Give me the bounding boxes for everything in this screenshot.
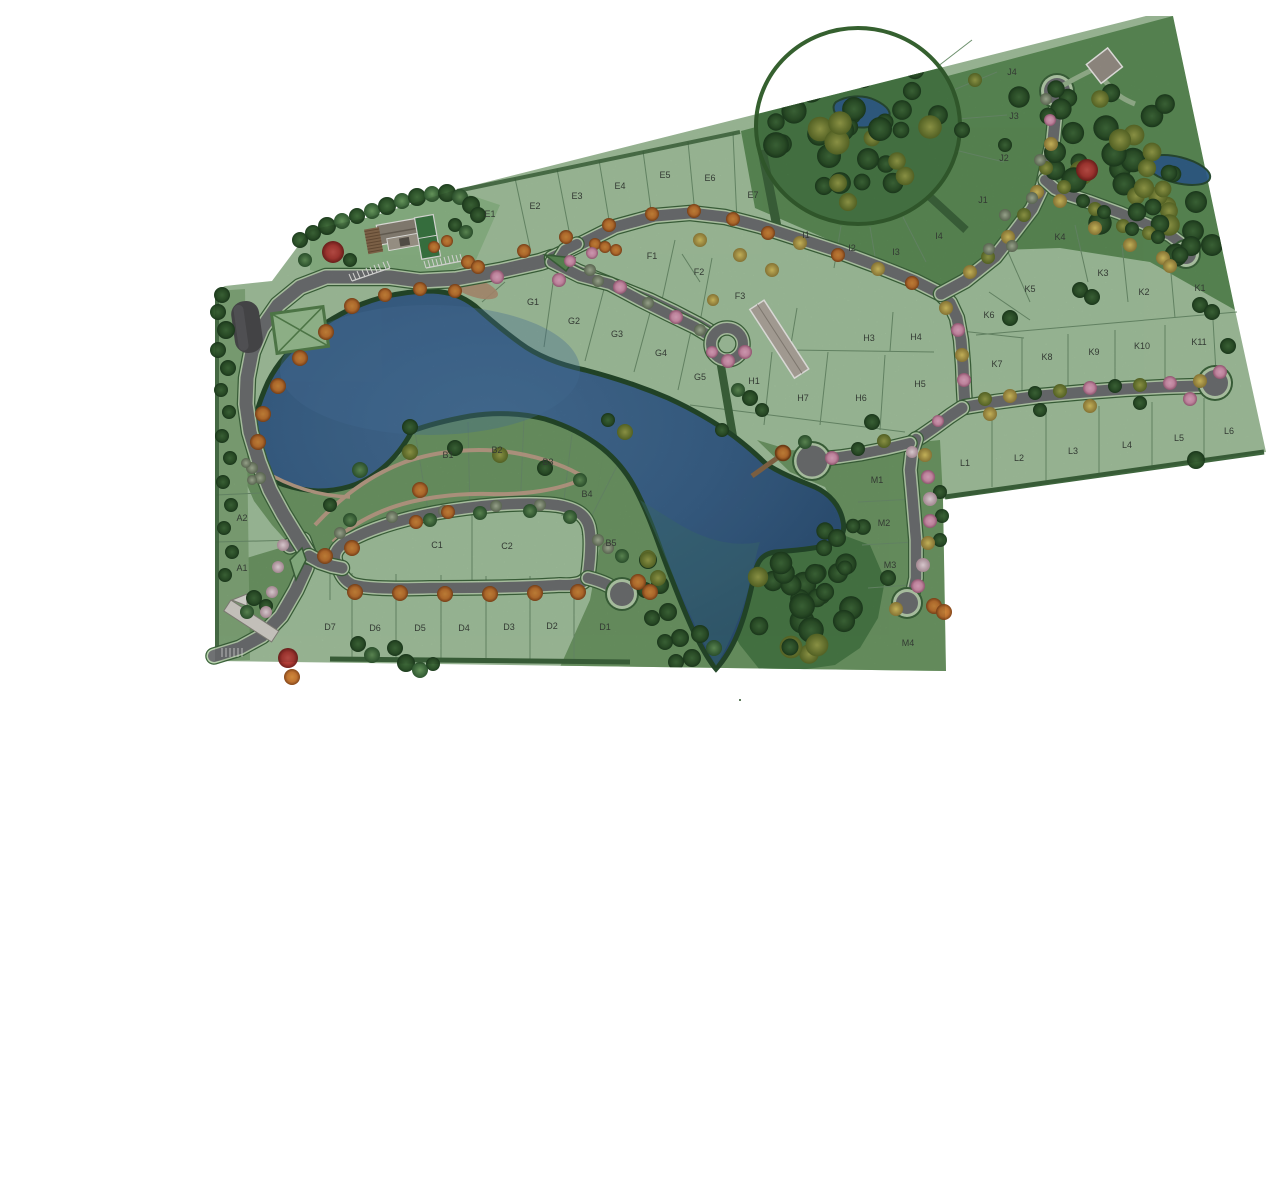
svg-text:J1: J1: [978, 195, 988, 205]
svg-text:M1: M1: [871, 475, 884, 485]
svg-text:H4: H4: [910, 332, 922, 342]
svg-text:H6: H6: [855, 393, 867, 403]
svg-text:B4: B4: [581, 489, 592, 499]
svg-text:F2: F2: [694, 267, 705, 277]
svg-text:E3: E3: [571, 191, 582, 201]
svg-text:I1: I1: [802, 230, 810, 240]
svg-text:M4: M4: [902, 638, 915, 648]
svg-text:K3: K3: [1097, 268, 1108, 278]
svg-text:H5: H5: [914, 379, 926, 389]
svg-text:L5: L5: [1174, 433, 1184, 443]
svg-text:M2: M2: [878, 518, 891, 528]
svg-text:L2: L2: [1014, 453, 1024, 463]
svg-text:L6: L6: [1224, 426, 1234, 436]
svg-text:C1: C1: [431, 540, 443, 550]
svg-text:G1: G1: [527, 297, 539, 307]
svg-text:K9: K9: [1088, 347, 1099, 357]
svg-text:A2: A2: [236, 513, 247, 523]
svg-text:M3: M3: [884, 560, 897, 570]
svg-text:E1: E1: [484, 209, 495, 219]
svg-text:K5: K5: [1024, 284, 1035, 294]
svg-text:E2: E2: [529, 201, 540, 211]
svg-text:J2: J2: [999, 153, 1009, 163]
svg-text:B5: B5: [605, 538, 616, 548]
svg-text:G2: G2: [568, 316, 580, 326]
svg-text:L4: L4: [1122, 440, 1132, 450]
svg-text:K7: K7: [991, 359, 1002, 369]
svg-text:H7: H7: [797, 393, 809, 403]
svg-text:K11: K11: [1191, 337, 1206, 347]
svg-text:B2: B2: [491, 445, 502, 455]
svg-text:J4: J4: [1007, 67, 1017, 77]
svg-text:E6: E6: [704, 173, 715, 183]
svg-text:D2: D2: [546, 621, 558, 631]
svg-text:A1: A1: [236, 563, 247, 573]
svg-text:K10: K10: [1134, 341, 1150, 351]
svg-text:B3: B3: [542, 457, 553, 467]
svg-text:D6: D6: [369, 623, 381, 633]
svg-text:K4: K4: [1054, 232, 1065, 242]
svg-text:K6: K6: [983, 310, 994, 320]
svg-text:I4: I4: [935, 231, 943, 241]
svg-text:H3: H3: [863, 333, 875, 343]
svg-text:K2: K2: [1138, 287, 1149, 297]
svg-text:C2: C2: [501, 541, 513, 551]
svg-text:E4: E4: [614, 181, 625, 191]
svg-text:L3: L3: [1068, 446, 1078, 456]
svg-text:K8: K8: [1041, 352, 1052, 362]
svg-text:G5: G5: [694, 372, 706, 382]
svg-text:H1: H1: [748, 376, 760, 386]
svg-text:E5: E5: [659, 170, 670, 180]
svg-text:I3: I3: [892, 247, 900, 257]
svg-text:E7: E7: [747, 190, 758, 200]
svg-text:D5: D5: [414, 623, 426, 633]
svg-text:F1: F1: [647, 251, 658, 261]
svg-text:I2: I2: [848, 243, 856, 253]
svg-text:B1: B1: [442, 450, 453, 460]
svg-text:L1: L1: [960, 458, 970, 468]
svg-text:D1: D1: [599, 622, 611, 632]
svg-text:G3: G3: [611, 329, 623, 339]
svg-text:F3: F3: [735, 291, 746, 301]
svg-text:G4: G4: [655, 348, 667, 358]
svg-text:D7: D7: [324, 622, 336, 632]
svg-text:D3: D3: [503, 622, 515, 632]
svg-text:D4: D4: [458, 623, 470, 633]
svg-text:K1: K1: [1194, 283, 1205, 293]
svg-text:J3: J3: [1009, 111, 1019, 121]
